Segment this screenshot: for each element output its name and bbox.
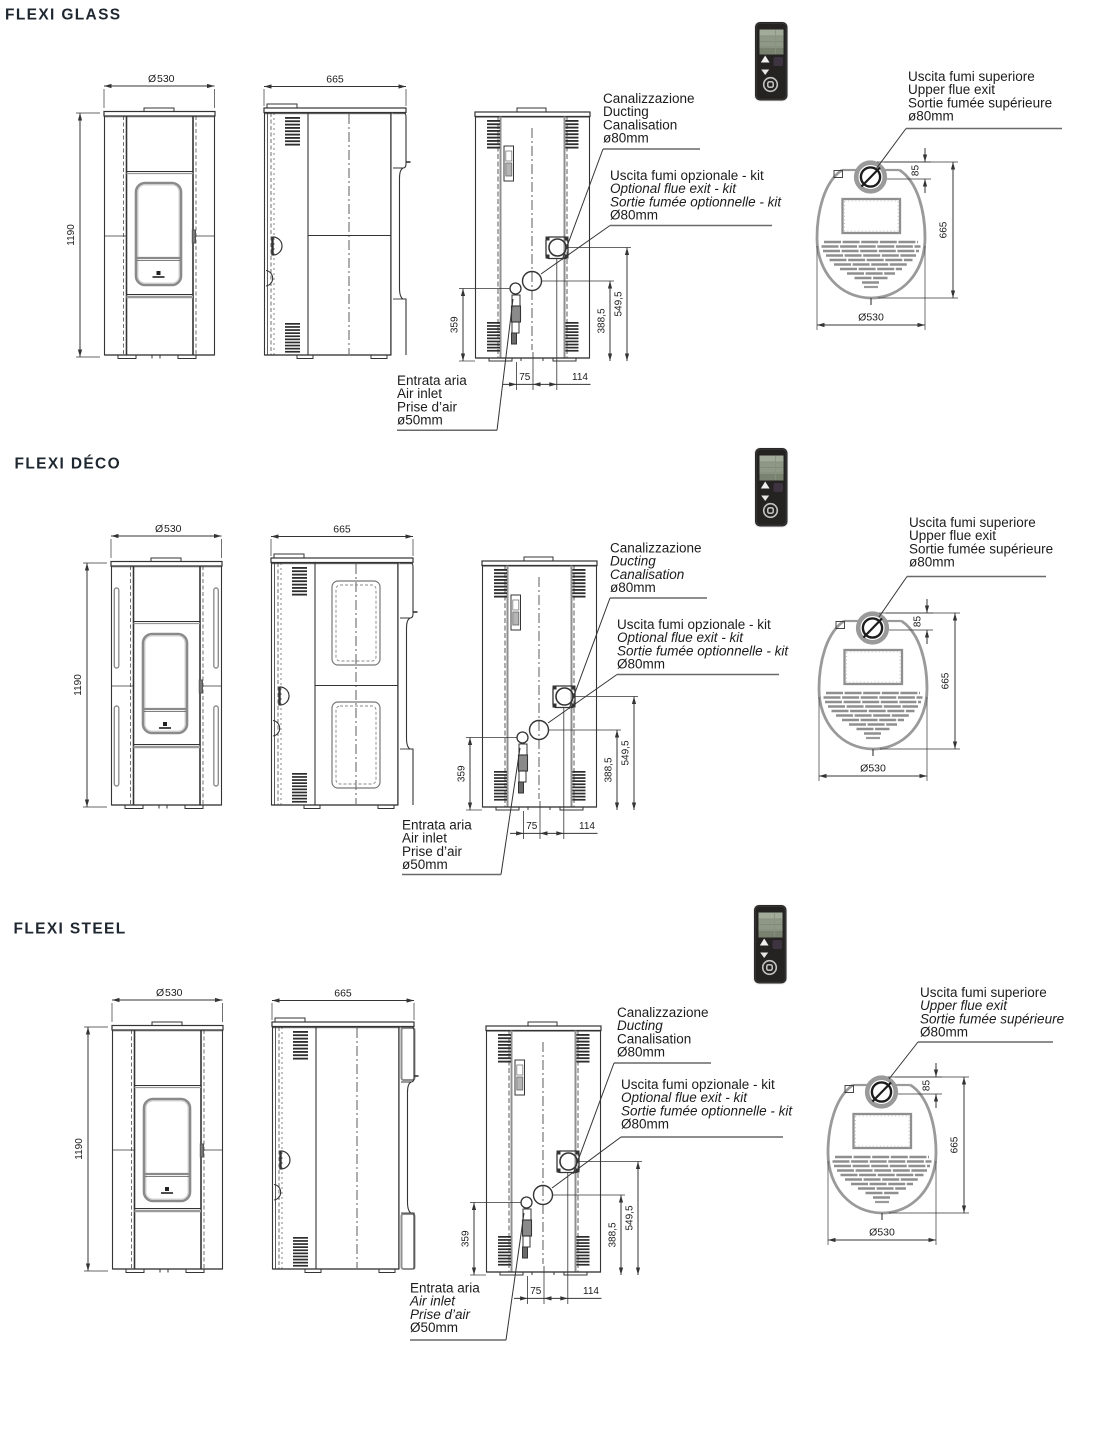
svg-text:665: 665 <box>939 221 950 238</box>
svg-text:114: 114 <box>572 372 588 383</box>
svg-text:85: 85 <box>922 1080 933 1092</box>
svg-text:85: 85 <box>913 616 924 628</box>
svg-text:Ø530: Ø530 <box>858 312 884 324</box>
svg-text:75: 75 <box>519 372 531 383</box>
svg-text:665: 665 <box>941 672 952 689</box>
svg-text:75: 75 <box>526 821 538 832</box>
svg-text:Ø80mm: Ø80mm <box>621 1117 669 1132</box>
svg-text:665: 665 <box>334 988 352 1000</box>
svg-text:530: 530 <box>157 73 175 85</box>
svg-text:530: 530 <box>165 987 183 999</box>
svg-text:114: 114 <box>583 1286 599 1297</box>
svg-text:1190: 1190 <box>74 1138 85 1160</box>
svg-text:Ø80mm: Ø80mm <box>920 1025 968 1040</box>
svg-text:ø50mm: ø50mm <box>397 413 443 428</box>
svg-text:75: 75 <box>530 1286 542 1297</box>
svg-text:Ø80mm: Ø80mm <box>617 657 665 672</box>
svg-text:Ø80mm: Ø80mm <box>610 208 658 223</box>
svg-text:Ø530: Ø530 <box>869 1227 895 1239</box>
svg-text:Ø530: Ø530 <box>860 763 886 775</box>
svg-text:FLEXI STEEL: FLEXI STEEL <box>14 921 127 938</box>
svg-text:665: 665 <box>326 74 344 86</box>
svg-text:ø80mm: ø80mm <box>610 580 656 595</box>
svg-text:Ø: Ø <box>155 523 163 535</box>
svg-text:359: 359 <box>461 1230 472 1247</box>
svg-text:FLEXI GLASS: FLEXI GLASS <box>5 7 121 24</box>
svg-text:665: 665 <box>333 524 351 536</box>
svg-text:549,5: 549,5 <box>614 291 625 316</box>
svg-text:549,5: 549,5 <box>625 1205 636 1230</box>
svg-text:530: 530 <box>164 523 182 535</box>
svg-text:ø80mm: ø80mm <box>909 555 955 570</box>
svg-text:665: 665 <box>950 1136 961 1153</box>
svg-text:Ø: Ø <box>156 987 164 999</box>
svg-text:ø80mm: ø80mm <box>908 109 954 124</box>
svg-text:1190: 1190 <box>73 674 84 696</box>
svg-text:359: 359 <box>450 316 461 333</box>
svg-text:Ø50mm: Ø50mm <box>410 1320 458 1335</box>
svg-text:114: 114 <box>579 821 595 832</box>
svg-text:Ø80mm: Ø80mm <box>617 1045 665 1060</box>
svg-text:388,5: 388,5 <box>608 1222 619 1247</box>
svg-text:388,5: 388,5 <box>597 308 608 333</box>
svg-text:FLEXI DÉCO: FLEXI DÉCO <box>15 456 122 473</box>
svg-text:Ø: Ø <box>148 73 156 85</box>
svg-text:ø80mm: ø80mm <box>603 131 649 146</box>
svg-text:ø50mm: ø50mm <box>402 857 448 872</box>
svg-text:388,5: 388,5 <box>604 757 615 782</box>
svg-text:549,5: 549,5 <box>621 740 632 765</box>
svg-text:359: 359 <box>457 765 468 782</box>
svg-text:1190: 1190 <box>66 224 77 246</box>
svg-text:85: 85 <box>911 165 922 177</box>
